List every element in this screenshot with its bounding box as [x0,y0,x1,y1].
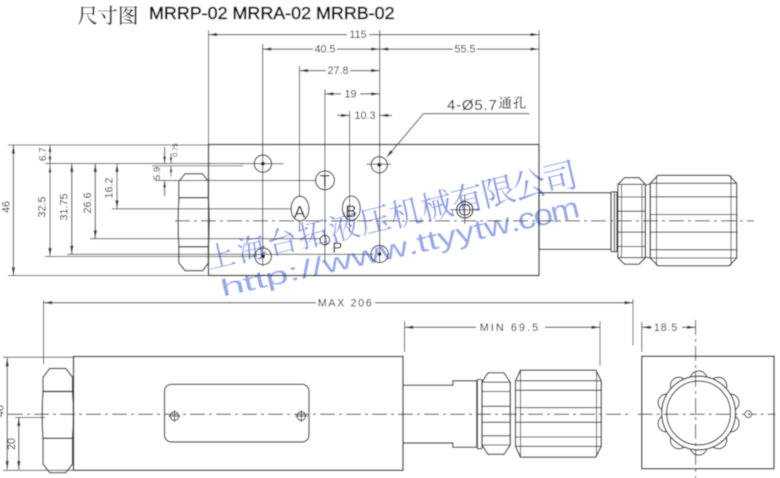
svg-text:MRRP-02 MRRA-02 MRRB-02: MRRP-02 MRRA-02 MRRB-02 [149,3,395,23]
svg-text:20: 20 [6,438,18,450]
svg-text:40: 40 [0,405,7,417]
svg-text:MIN 69.5: MIN 69.5 [480,322,541,334]
svg-text:46: 46 [1,201,13,213]
svg-text:4-Ø5.7: 4-Ø5.7 [447,97,498,114]
svg-text:18.5: 18.5 [654,322,678,334]
svg-text:P: P [332,239,342,256]
svg-text:MAX 206: MAX 206 [318,297,374,309]
svg-text:27.8: 27.8 [327,65,348,77]
svg-text:0.75: 0.75 [173,143,180,157]
svg-text:26.6: 26.6 [82,192,94,213]
svg-text:40.5: 40.5 [314,44,335,56]
svg-text:B: B [345,202,356,221]
svg-text:10.3: 10.3 [354,110,375,122]
svg-text:19: 19 [344,89,356,101]
svg-text:5.9: 5.9 [152,167,163,180]
svg-text:A: A [294,203,306,222]
svg-text:115: 115 [349,29,366,41]
svg-text:31.75: 31.75 [58,193,70,220]
svg-text:55.5: 55.5 [454,44,475,56]
svg-text:6.7: 6.7 [38,147,49,161]
svg-text:16.2: 16.2 [104,177,116,198]
svg-text:32.5: 32.5 [37,196,49,217]
svg-text:T: T [320,172,330,191]
